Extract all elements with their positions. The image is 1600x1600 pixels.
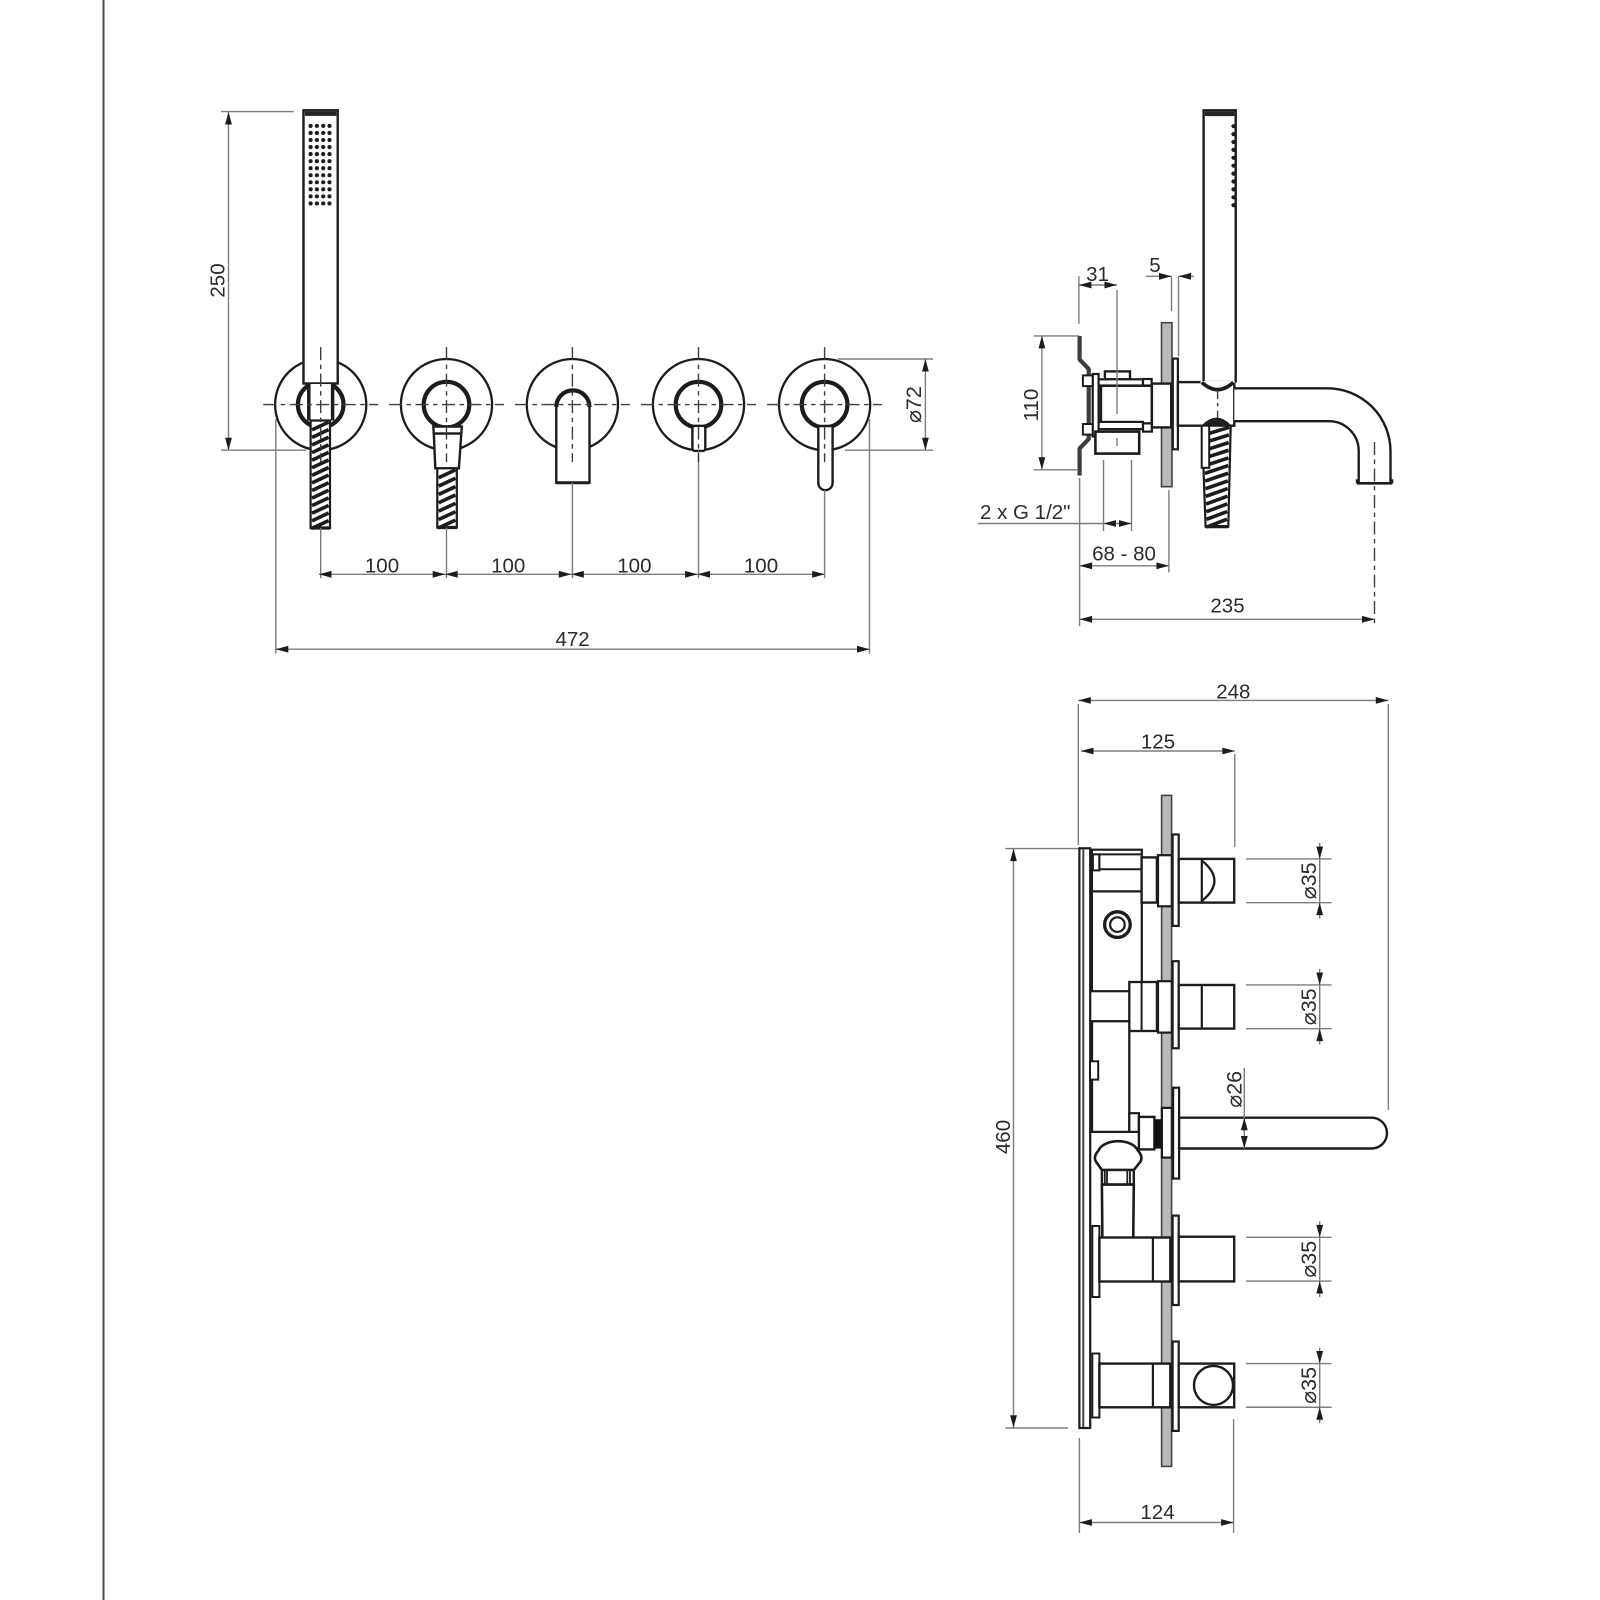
svg-text:⌀35: ⌀35: [1297, 862, 1321, 899]
svg-text:248: 248: [1216, 681, 1250, 704]
svg-text:⌀35: ⌀35: [1297, 1367, 1321, 1404]
svg-text:460: 460: [992, 1120, 1015, 1154]
svg-text:250: 250: [207, 263, 230, 297]
svg-text:125: 125: [1141, 731, 1175, 754]
svg-text:100: 100: [491, 554, 525, 577]
svg-text:⌀26: ⌀26: [1223, 1071, 1247, 1108]
svg-text:100: 100: [617, 554, 651, 577]
svg-text:5: 5: [1149, 254, 1160, 277]
svg-text:31: 31: [1086, 263, 1109, 286]
svg-text:100: 100: [365, 554, 399, 577]
svg-text:472: 472: [555, 628, 589, 651]
svg-text:100: 100: [744, 554, 778, 577]
svg-text:68 - 80: 68 - 80: [1092, 543, 1156, 566]
svg-text:235: 235: [1210, 595, 1244, 618]
svg-text:⌀35: ⌀35: [1297, 1241, 1321, 1278]
svg-text:⌀35: ⌀35: [1297, 988, 1321, 1025]
svg-text:110: 110: [1020, 389, 1043, 422]
svg-text:⌀72: ⌀72: [902, 386, 926, 423]
svg-text:124: 124: [1140, 1501, 1174, 1524]
svg-text:2 x G 1/2": 2 x G 1/2": [980, 501, 1070, 524]
